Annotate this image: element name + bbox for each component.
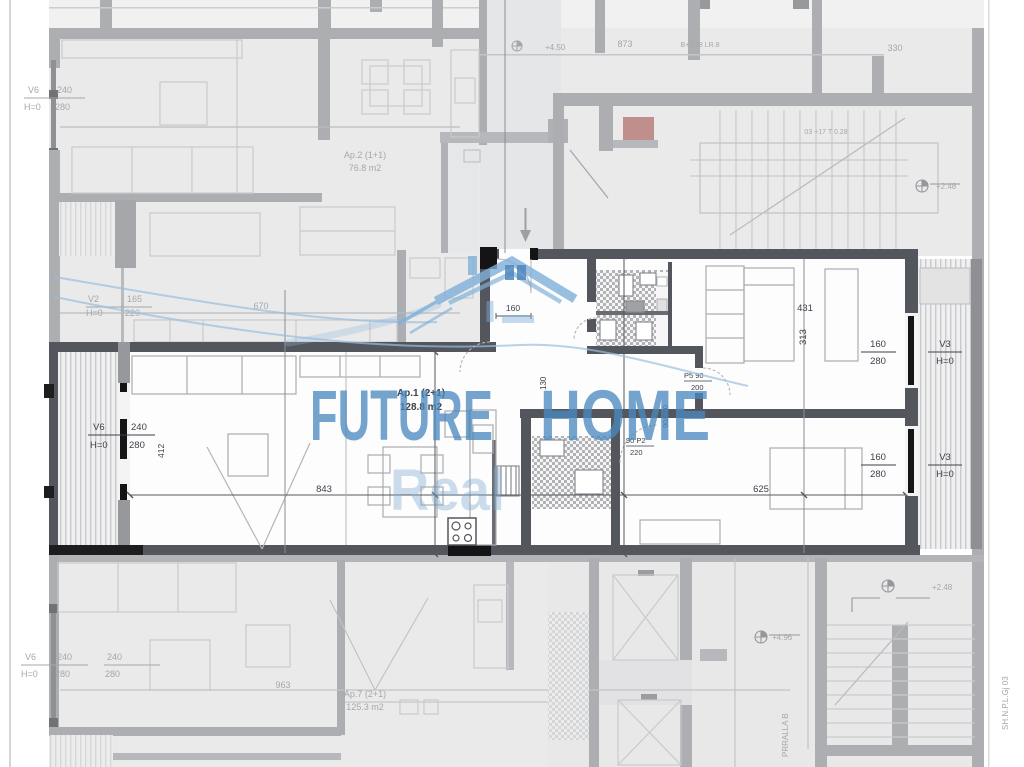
svg-text:HOME: HOME [540, 377, 710, 456]
svg-text:H=0: H=0 [90, 440, 108, 451]
svg-text:873: 873 [617, 39, 632, 49]
svg-text:280: 280 [105, 669, 120, 679]
svg-text:240: 240 [131, 422, 147, 433]
svg-text:160: 160 [870, 452, 886, 463]
svg-text:240: 240 [57, 85, 72, 95]
svg-text:160: 160 [506, 303, 520, 313]
svg-text:125.3 m2: 125.3 m2 [346, 702, 384, 712]
svg-text:H=0: H=0 [936, 356, 954, 367]
svg-text:FUTURE: FUTURE [310, 377, 493, 456]
svg-text:280: 280 [55, 102, 70, 112]
svg-text:03 +17 T 0.28: 03 +17 T 0.28 [804, 129, 847, 136]
svg-text:160: 160 [870, 339, 886, 350]
svg-text:V3: V3 [939, 339, 951, 350]
svg-text:625: 625 [753, 484, 769, 495]
svg-text:313: 313 [798, 329, 809, 345]
svg-text:SH.N.P.L.Gj 03: SH.N.P.L.Gj 03 [1001, 676, 1010, 730]
svg-text:PRRALLA B: PRRALLA B [781, 713, 790, 757]
svg-text:V6: V6 [25, 652, 36, 662]
svg-text:240: 240 [57, 652, 72, 662]
svg-text:330: 330 [887, 43, 902, 53]
svg-text:+4.50: +4.50 [545, 43, 566, 52]
svg-text:B+3.28 LR.8: B+3.28 LR.8 [680, 42, 719, 49]
svg-text:V3: V3 [939, 452, 951, 463]
svg-text:76.8 m2: 76.8 m2 [349, 163, 382, 173]
svg-text:963: 963 [275, 680, 290, 690]
svg-text:412: 412 [156, 444, 166, 458]
svg-text:Real: Real [390, 458, 505, 523]
svg-text:V6: V6 [93, 422, 105, 433]
svg-text:H=0: H=0 [936, 469, 954, 480]
svg-text:V6: V6 [28, 85, 39, 95]
svg-text:280: 280 [129, 440, 145, 451]
svg-text:H=0: H=0 [24, 102, 41, 112]
svg-text:Ap.2 (1+1): Ap.2 (1+1) [344, 150, 386, 160]
svg-text:+2.48: +2.48 [932, 583, 953, 592]
svg-text:165: 165 [127, 294, 142, 304]
svg-text:Ap.7 (2+1): Ap.7 (2+1) [344, 689, 386, 699]
svg-text:+2.48: +2.48 [936, 182, 957, 191]
svg-text:+4.96: +4.96 [772, 633, 793, 642]
svg-text:431: 431 [797, 303, 813, 314]
svg-text:H=0: H=0 [86, 308, 103, 318]
svg-text:280: 280 [55, 669, 70, 679]
svg-text:H=0: H=0 [21, 669, 38, 679]
svg-text:280: 280 [870, 356, 886, 367]
svg-text:280: 280 [870, 469, 886, 480]
svg-text:V2: V2 [88, 294, 99, 304]
svg-text:240: 240 [107, 652, 122, 662]
svg-text:843: 843 [316, 484, 332, 495]
